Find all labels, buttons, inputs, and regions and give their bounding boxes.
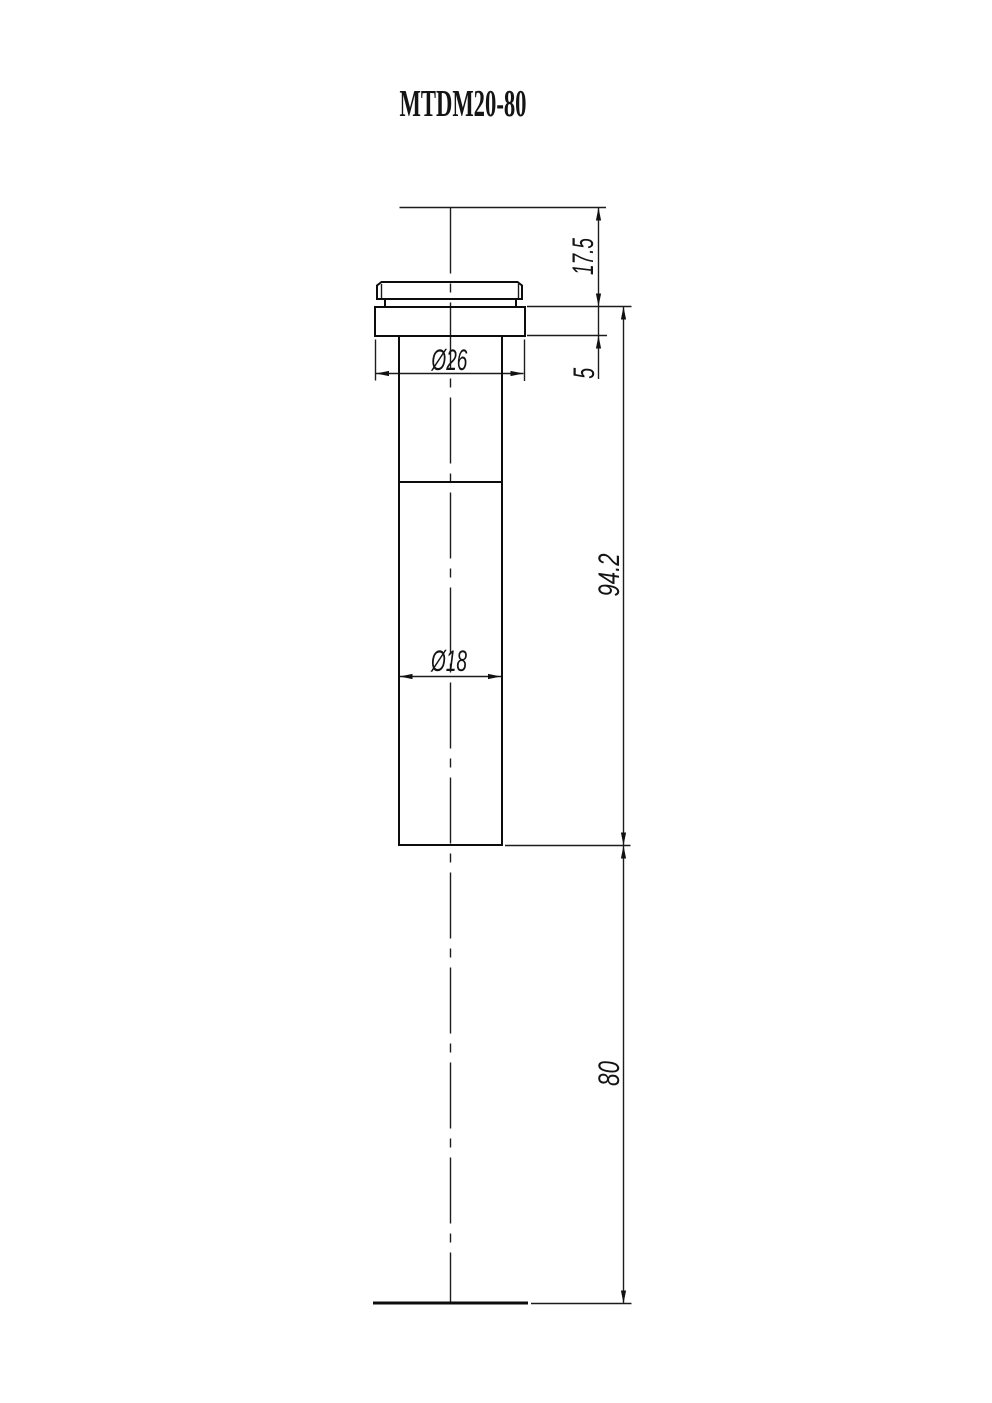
svg-text:94.2: 94.2	[593, 553, 626, 596]
svg-text:Ø18: Ø18	[430, 645, 467, 678]
svg-text:Ø26: Ø26	[431, 344, 468, 377]
svg-text:MTDM20-80: MTDM20-80	[400, 83, 527, 125]
svg-text:17.5: 17.5	[567, 238, 600, 275]
svg-text:80: 80	[593, 1061, 626, 1086]
svg-text:5: 5	[568, 368, 601, 379]
